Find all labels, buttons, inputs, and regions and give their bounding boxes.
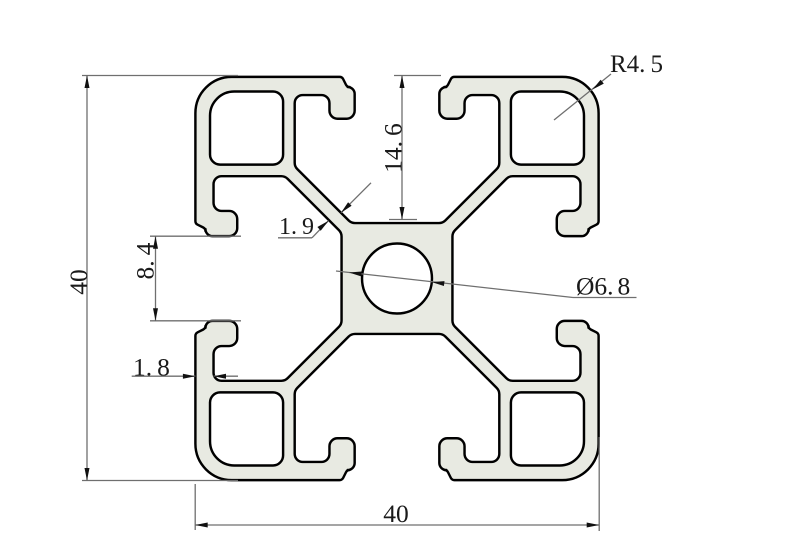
svg-text:14.6: 14.6 xyxy=(379,123,408,173)
svg-text:Ø6.8: Ø6.8 xyxy=(576,272,630,301)
svg-text:40: 40 xyxy=(383,499,409,528)
svg-text:40: 40 xyxy=(64,269,93,295)
svg-text:8.4: 8.4 xyxy=(131,242,160,279)
svg-text:1.9: 1.9 xyxy=(279,214,314,240)
svg-text:1.8: 1.8 xyxy=(133,353,170,382)
svg-text:R4.5: R4.5 xyxy=(610,51,663,78)
